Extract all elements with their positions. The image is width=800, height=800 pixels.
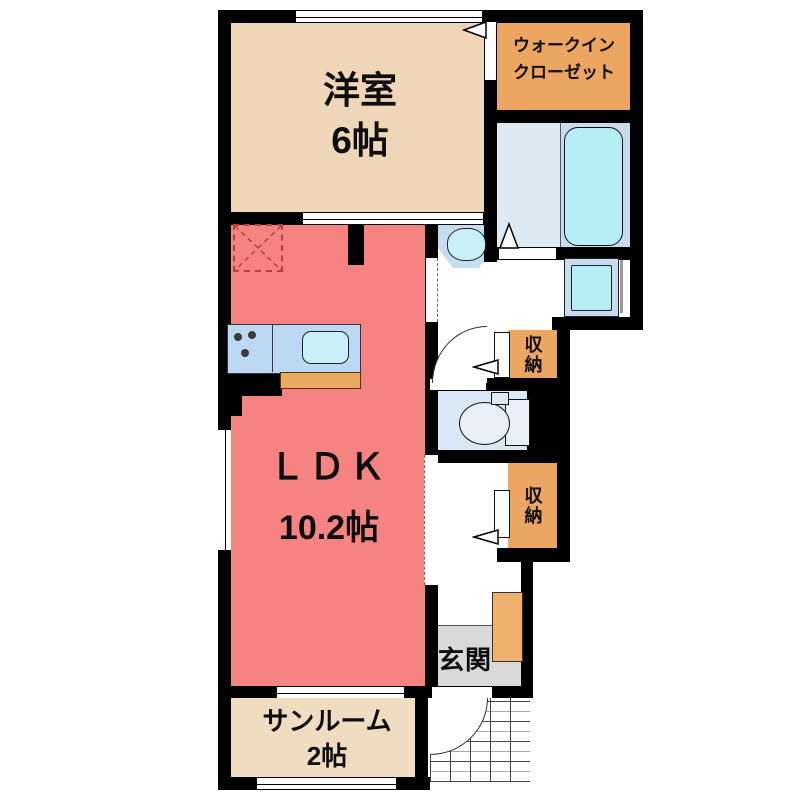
floor-plan: 洋室 6帖 ウォークイン クローゼット ＬＤＫ 10.2帖 サンルーム 2帖 収… — [0, 0, 800, 800]
kitchen-counter-edge — [280, 372, 361, 389]
window-ldk-left — [218, 430, 231, 550]
label-yoshitsu-name: 洋室 — [240, 66, 480, 116]
toilet-cistern — [491, 392, 509, 405]
label-wic-line1: ウォークイン — [498, 32, 630, 59]
slider-yoshitsu-ldk — [303, 213, 483, 224]
label-storage-upper: 収納 — [508, 332, 557, 378]
washing-machine — [571, 265, 612, 311]
storage-lower-door-triangle — [472, 528, 500, 546]
door-gap-ldk-hall — [426, 258, 438, 322]
kitchen-counter-divider — [272, 324, 273, 372]
shoe-cabinet — [492, 592, 523, 662]
label-ldk-name: ＬＤＫ — [234, 438, 424, 490]
label-yoshitsu-size: 6帖 — [240, 116, 480, 166]
wall-right-upper — [630, 10, 643, 330]
slider-ldk-hall — [424, 455, 438, 585]
stove-burner-3 — [241, 349, 249, 357]
label-sunroom-name: サンルーム — [237, 704, 417, 739]
wall-storage-lower-bottom — [497, 548, 570, 562]
stove-burner-1 — [234, 333, 242, 341]
label-genkan: 玄関 — [434, 640, 496, 677]
label-sunroom-size: 2帖 — [237, 739, 417, 774]
label-sunroom: サンルーム 2帖 — [237, 704, 417, 774]
bathtub — [564, 127, 623, 246]
label-storage-lower: 収納 — [508, 468, 557, 544]
kitchen-sink — [302, 331, 349, 364]
label-wic-line2: クローゼット — [498, 59, 630, 86]
window-yoshitsu-top — [296, 11, 482, 22]
wall-wic-bottom — [497, 110, 643, 123]
wic-door-triangle — [462, 20, 488, 40]
wall-toilet-bottom — [425, 450, 570, 463]
window-sunroom-bottom — [257, 778, 396, 789]
label-ldk: ＬＤＫ 10.2帖 — [234, 438, 424, 549]
refrigerator-x-mark — [235, 226, 281, 270]
toilet-bowl — [459, 402, 510, 445]
bath-pipe-line — [620, 260, 623, 313]
label-ldk-size: 10.2帖 — [234, 500, 424, 549]
washbasin-bowl — [447, 228, 486, 261]
wall-kitchen-stub — [218, 372, 242, 416]
refrigerator-space — [233, 224, 283, 272]
slider-ldk-sunroom — [277, 687, 404, 698]
stove-burner-2 — [248, 331, 256, 339]
label-yoshitsu: 洋室 6帖 — [240, 66, 480, 166]
storage-upper-door-triangle — [472, 358, 500, 376]
bath-door-triangle — [498, 222, 520, 250]
label-wic: ウォークイン クローゼット — [498, 32, 630, 86]
